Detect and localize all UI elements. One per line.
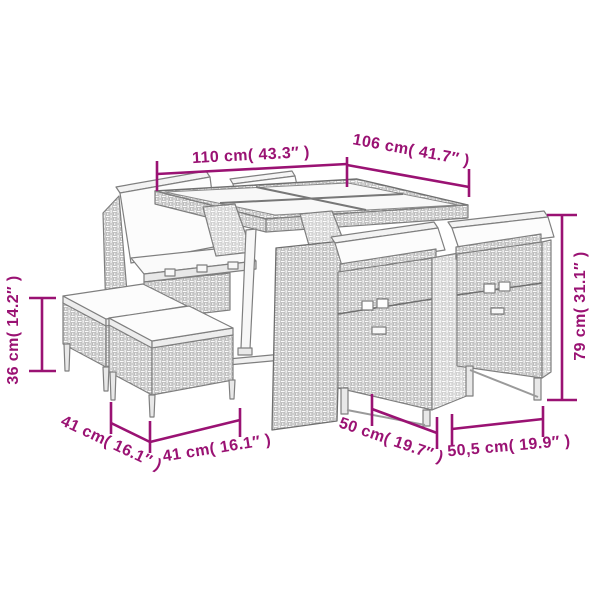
furniture-illustration <box>0 0 600 600</box>
table-foot <box>238 348 252 355</box>
chair-notch <box>377 299 388 308</box>
seat-clip <box>197 265 207 272</box>
stool-front <box>109 306 235 417</box>
dimension-diagram: 110 cm( 43.3″ ) 106 cm( 41.7″ ) 36 cm( 1… <box>0 0 600 600</box>
dimension-line-stool-height <box>29 298 56 371</box>
seat-clip <box>228 262 238 269</box>
chair-leg <box>423 410 430 426</box>
chair-leg <box>341 388 348 414</box>
right-chair-near <box>331 222 469 426</box>
chair-side-panel <box>542 240 551 378</box>
stool-leg <box>64 344 70 371</box>
stool-leg <box>149 395 155 417</box>
dimension-line-stool-width <box>150 408 240 442</box>
chair-notch <box>484 284 495 293</box>
label-chair-height: 79 cm( 31.1″ ) <box>572 251 590 360</box>
seat-clip <box>165 269 175 276</box>
chair-clip <box>372 327 386 334</box>
chair-clip <box>491 308 504 314</box>
chair-notch <box>499 282 510 291</box>
chair-notch <box>362 301 373 310</box>
label-stool-height: 36 cm( 14.2″ ) <box>5 275 23 384</box>
stool-leg <box>110 372 116 400</box>
table-pedestal-panel <box>272 241 342 430</box>
stool-leg <box>229 380 235 399</box>
stool-leg <box>103 367 109 391</box>
